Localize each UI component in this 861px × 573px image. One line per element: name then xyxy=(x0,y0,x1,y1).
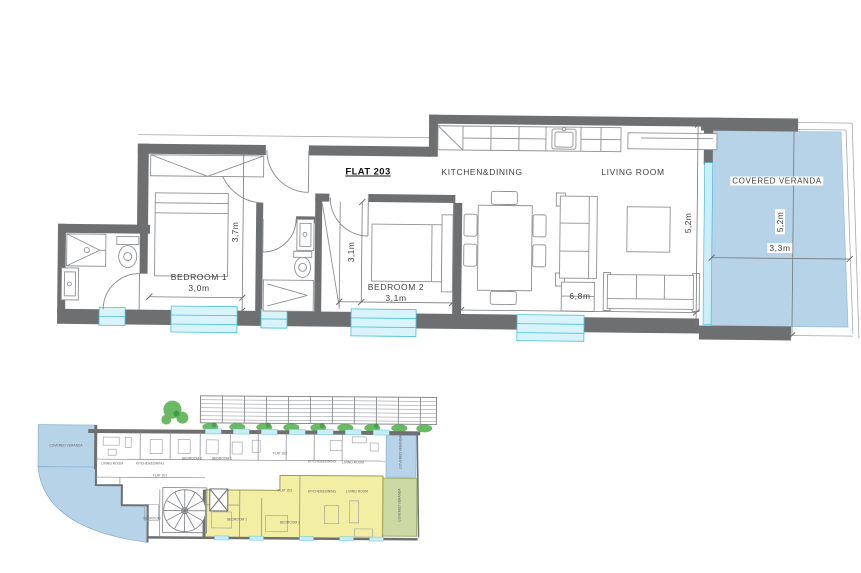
site-label-covered-veranda-left: COVERED VERANDA xyxy=(49,444,82,447)
bedroom1-width-dim: 3,0m xyxy=(188,283,209,293)
site-label-bedroom-lower-left: BEDROOM xyxy=(143,517,160,520)
site-label-bedroom1-top: BEDROOM 1 xyxy=(212,457,232,460)
site-label-flat-201: FLAT 201 xyxy=(153,474,167,477)
site-label-flat-202: FLAT 202 xyxy=(273,452,287,455)
bedroom2-label: BEDROOM 2 xyxy=(368,282,424,292)
site-label-kitchen-dining-1: KITCHEN&DINING xyxy=(136,462,164,465)
bedroom2-depth-dim: 3,1m xyxy=(346,242,356,263)
site-label-covered-veranda-right: COVERED VERANDA xyxy=(399,435,402,468)
kitchen-dining-label: KITCHEN&DINING xyxy=(441,167,522,177)
site-label-living-room-2: LIVING ROOM xyxy=(342,461,364,464)
veranda-width-dim: 3,3m xyxy=(767,243,792,253)
floorplan-page: FLAT 203 KITCHEN&DINING LIVING ROOM COVE… xyxy=(0,0,861,573)
living-depth-dim: 5,2m xyxy=(683,213,693,234)
site-label-kitchen-dining-2: KITCHEN&DINING xyxy=(308,460,336,463)
living-width-dim: 6,8m xyxy=(569,291,590,301)
site-label-bedroom1-flat203: BEDROOM 1 xyxy=(227,518,247,521)
bedroom1-label: BEDROOM 1 xyxy=(171,272,227,282)
site-label-bedroom2-top: BEDROOM 2 xyxy=(182,457,202,460)
site-label-kitchen-dining-3: KITCHEN&DINING xyxy=(308,490,336,493)
bedroom1-depth-dim: 3,7m xyxy=(230,222,240,243)
labels-layer: FLAT 203 KITCHEN&DINING LIVING ROOM COVE… xyxy=(0,0,861,573)
site-label-living-room-3: LIVING ROOM xyxy=(346,490,368,493)
living-room-label: LIVING ROOM xyxy=(601,167,664,177)
covered-veranda-label: COVERED VERANDA xyxy=(730,177,823,186)
site-label-bedroom2-flat203: BEDROOM 2 xyxy=(280,521,300,524)
flat-title: FLAT 203 xyxy=(345,167,390,178)
veranda-depth-dim: 5,2m xyxy=(775,210,785,235)
site-label-flat-203: FLAT 203 xyxy=(278,489,292,492)
site-label-covered-veranda-green: COVERED VERANDA xyxy=(398,488,401,521)
site-label-living-room-1: LIVING ROOM xyxy=(101,462,123,465)
bedroom2-width-dim: 3,1m xyxy=(385,293,406,303)
